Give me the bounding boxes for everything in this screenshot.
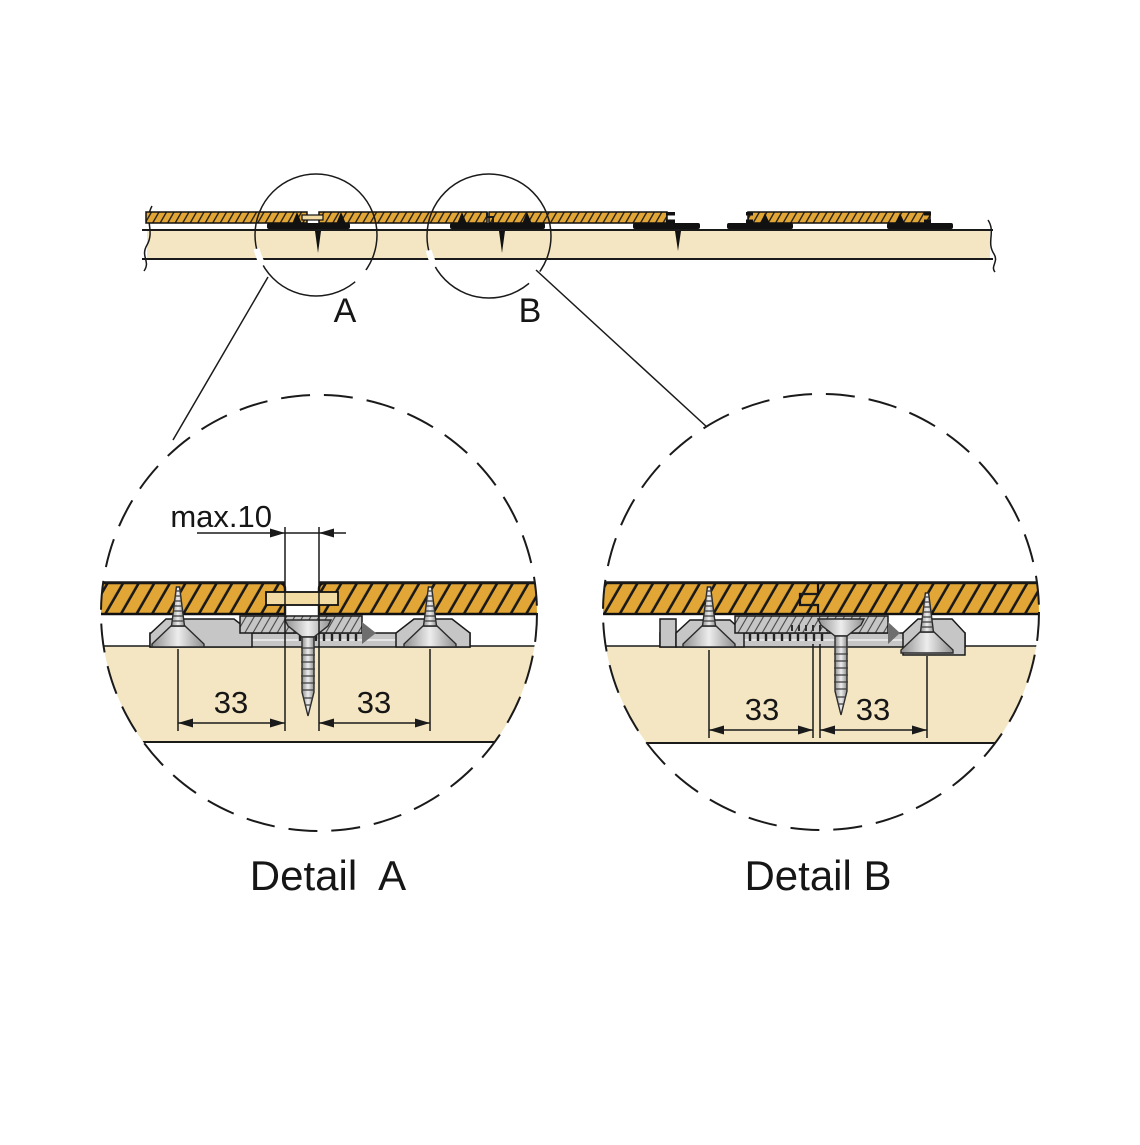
top-deck-boards — [146, 212, 931, 223]
detail-a-left-dim: 33 — [214, 685, 248, 720]
detail-b-boards — [597, 583, 1047, 615]
decking-installation-diagram: A B — [0, 0, 1140, 1140]
leader-line-b — [536, 270, 708, 428]
callout-b-label: B — [519, 292, 542, 330]
detail-b-title: Detail B — [744, 852, 891, 899]
detail-a-right-dim: 33 — [357, 685, 391, 720]
detail-a-gap-dim: max.10 — [170, 499, 272, 534]
detail-b-view: 33 33 Detail B — [597, 394, 1047, 899]
detail-a-joist — [95, 646, 545, 742]
top-joint-connector — [302, 215, 323, 220]
detail-a-view: max.10 33 33 Detail A — [95, 395, 545, 899]
detail-b-right-dim: 33 — [856, 692, 890, 727]
detail-a-title: Detail A — [250, 852, 406, 899]
technical-diagram-page: A B — [0, 0, 1140, 1140]
detail-b-joist — [597, 646, 1047, 743]
callout-a-label: A — [334, 292, 357, 330]
top-joist — [147, 231, 990, 259]
top-view-section: A B — [142, 150, 996, 440]
detail-b-left-dim: 33 — [745, 692, 779, 727]
detail-a-connector-bar — [266, 592, 338, 605]
